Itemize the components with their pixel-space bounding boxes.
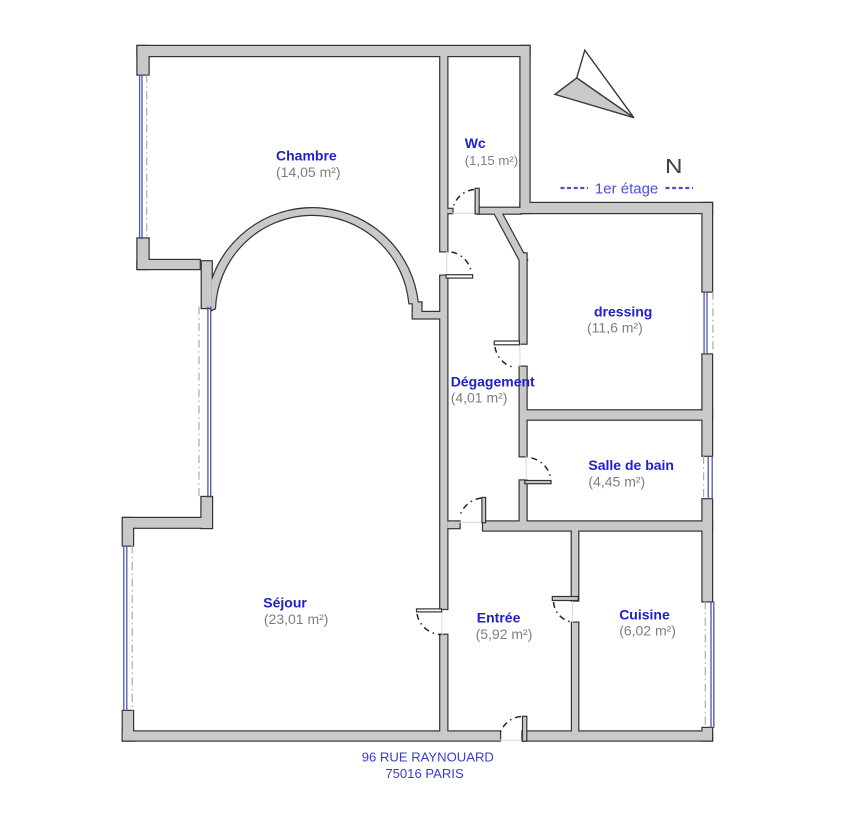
svg-text:N: N	[665, 156, 683, 178]
svg-text:96 RUE RAYNOUARD: 96 RUE RAYNOUARD	[362, 749, 494, 764]
svg-text:Salle de bain: Salle de bain	[588, 457, 674, 473]
svg-text:(5,92 m²): (5,92 m²)	[476, 626, 533, 642]
svg-text:(6,02 m²): (6,02 m²)	[619, 623, 676, 639]
svg-text:(23,01 m²): (23,01 m²)	[264, 611, 329, 627]
svg-text:(14,05 m²): (14,05 m²)	[276, 164, 341, 180]
svg-text:1er étage: 1er étage	[595, 181, 658, 198]
svg-text:Wc: Wc	[465, 135, 486, 151]
svg-text:(1,15 m²): (1,15 m²)	[465, 153, 519, 168]
svg-text:75016 PARIS: 75016 PARIS	[385, 766, 464, 781]
svg-text:Cuisine: Cuisine	[619, 607, 670, 623]
svg-text:dressing: dressing	[594, 304, 652, 320]
svg-text:(4,45 m²): (4,45 m²)	[588, 474, 645, 490]
svg-text:Chambre: Chambre	[276, 148, 337, 164]
svg-text:(4,01 m²): (4,01 m²)	[451, 389, 508, 405]
svg-text:(11,6 m²): (11,6 m²)	[587, 319, 643, 335]
svg-text:Dégagement: Dégagement	[451, 374, 535, 390]
svg-text:Séjour: Séjour	[263, 595, 307, 611]
svg-text:Entrée: Entrée	[477, 610, 521, 626]
